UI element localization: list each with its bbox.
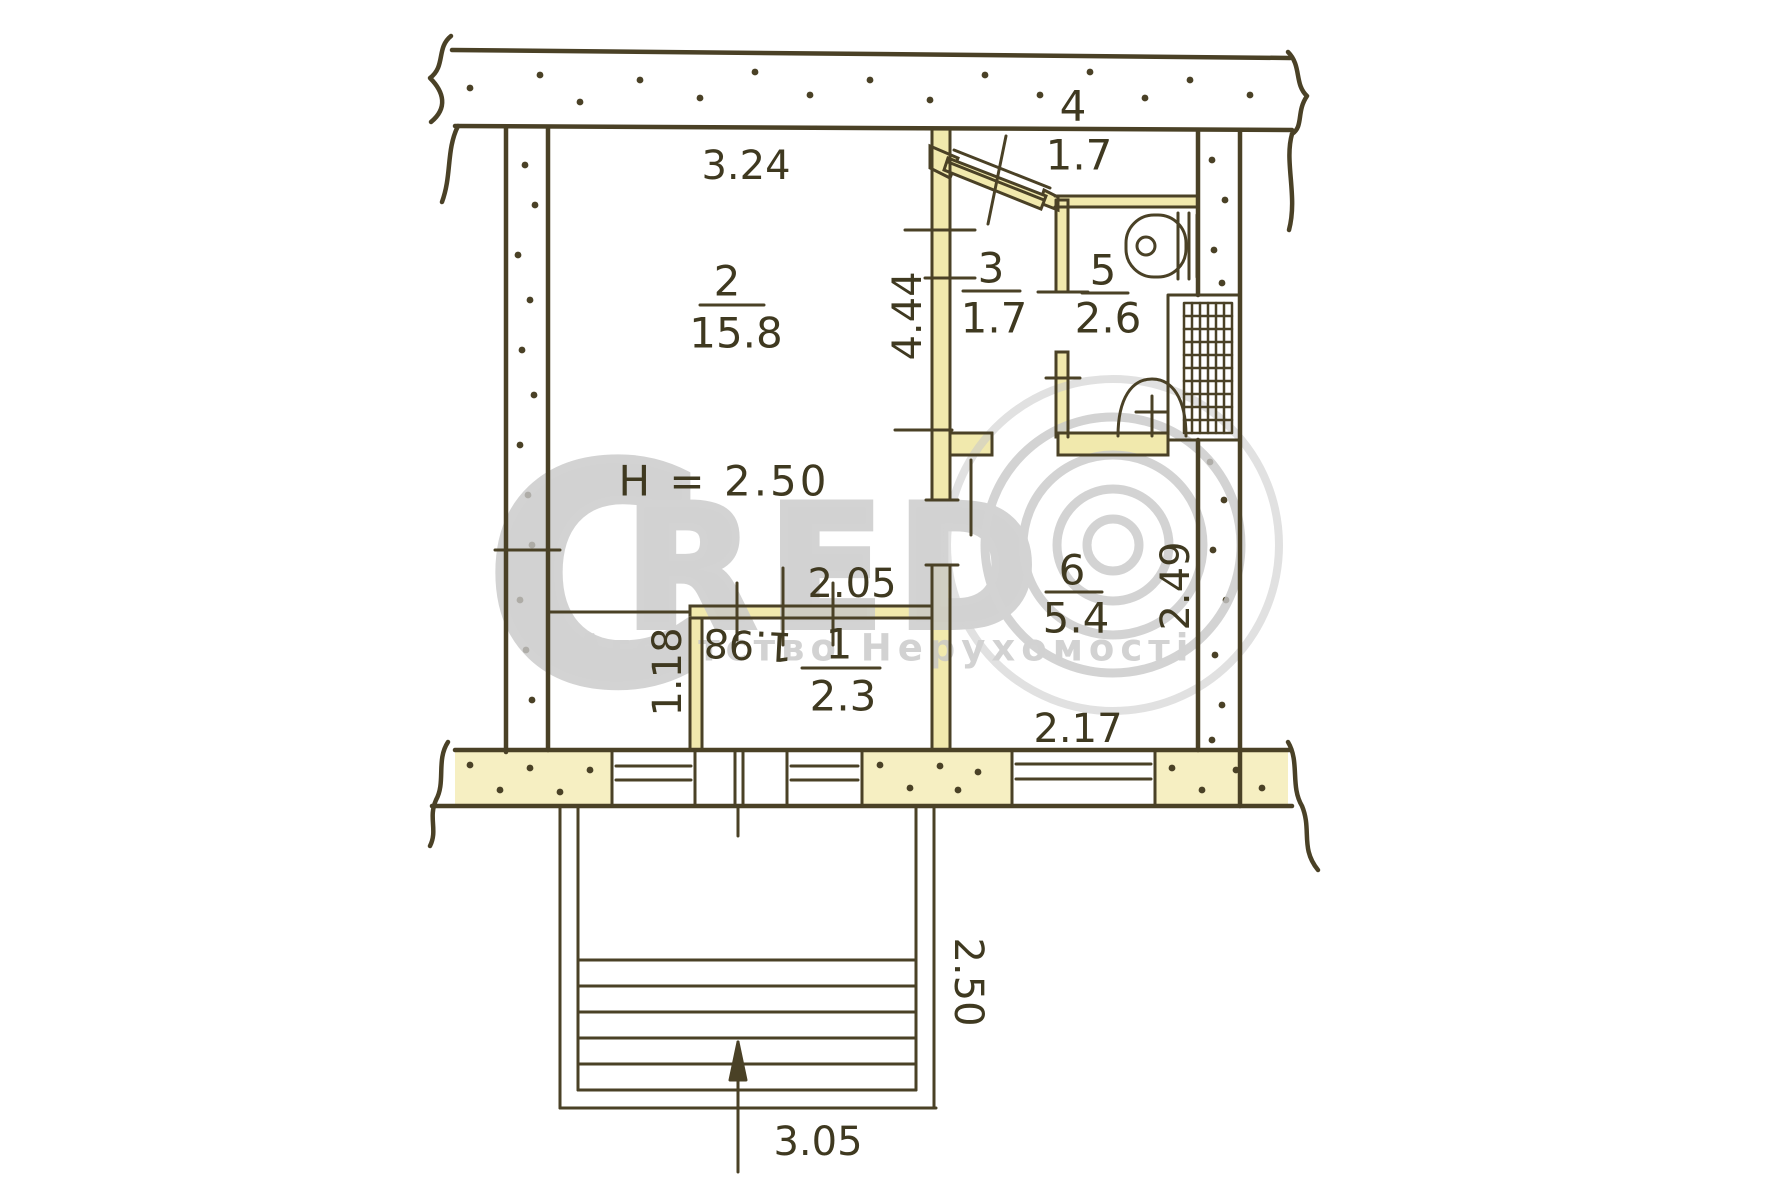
- room2-area: 15.8: [689, 309, 783, 358]
- central-wall-upper: [932, 128, 950, 500]
- top-right-break-line: [1288, 52, 1307, 134]
- room5-number: 5: [1090, 246, 1117, 295]
- window2-glass-lines: [791, 766, 858, 780]
- dim-closet-width: 2.05: [807, 561, 896, 607]
- balcony: [560, 806, 936, 1172]
- balcony-bottom-lines: [560, 1090, 936, 1108]
- dim-balcony-width: 3.05: [773, 1119, 862, 1165]
- dim-closet-offset: 1.18: [645, 627, 691, 716]
- toilet-cistern-icon: [1178, 213, 1197, 279]
- window1-glass-lines: [616, 766, 691, 780]
- balcony-dim-arrowhead: [730, 1042, 746, 1080]
- top-wall-inner-line: [455, 126, 1292, 130]
- top-right-break-tail: [1289, 134, 1292, 230]
- room5-left-wall-upper: [1056, 200, 1068, 292]
- room6-area: 5.4: [1043, 594, 1110, 643]
- window1-jambs: [612, 750, 695, 806]
- room3-number: 3: [978, 244, 1005, 293]
- balcony-right-wall-lines: [916, 806, 934, 1108]
- bottom-pier-middle: [862, 750, 1012, 806]
- dim-balcony-depth: 2.50: [945, 937, 991, 1026]
- bottom-left-break-line: [430, 742, 448, 846]
- balcony-door-jambs: [735, 750, 743, 836]
- room5-area: 2.6: [1075, 294, 1142, 343]
- window3-glass-lines: [1016, 764, 1151, 779]
- room6-number: 6: [1059, 546, 1086, 595]
- dim-top-width: 3.24: [701, 143, 790, 189]
- floor-plan-drawing: C RED Агентство Нерухомості: [0, 0, 1772, 1181]
- top-left-break-tail: [442, 126, 458, 202]
- room4-bottom-wall: [1055, 196, 1198, 207]
- window2-jambs: [787, 750, 862, 806]
- bottom-pier-right: [1155, 750, 1288, 806]
- room1-area: 2.3: [810, 672, 877, 721]
- dim-closet-clear-width: 1.98: [702, 619, 793, 670]
- bottom-pier-left: [455, 750, 612, 806]
- balcony-steps: [578, 960, 916, 1064]
- dim-room6-width: 2.17: [1033, 706, 1122, 752]
- room4-area: 1.7: [1046, 131, 1113, 180]
- toilet-flush-icon: [1137, 237, 1155, 255]
- top-left-break-line: [430, 36, 451, 122]
- balcony-left-wall-lines: [560, 806, 578, 1108]
- room2-number: 2: [714, 257, 741, 306]
- top-wall-outer-line: [452, 50, 1290, 58]
- dim-room6-depth: 2.49: [1153, 541, 1199, 630]
- floor-plan-scan: C RED Агентство Нерухомості: [0, 0, 1772, 1181]
- vent-shaft: [1168, 295, 1240, 440]
- dim-hall-depth: 4.44: [885, 271, 931, 360]
- room4-number: 4: [1060, 82, 1087, 131]
- room3-area: 1.7: [961, 294, 1028, 343]
- ceiling-height-note: H = 2.50: [619, 457, 830, 506]
- vent-grid-lines: [1184, 303, 1232, 433]
- room1-number: 1: [826, 620, 853, 669]
